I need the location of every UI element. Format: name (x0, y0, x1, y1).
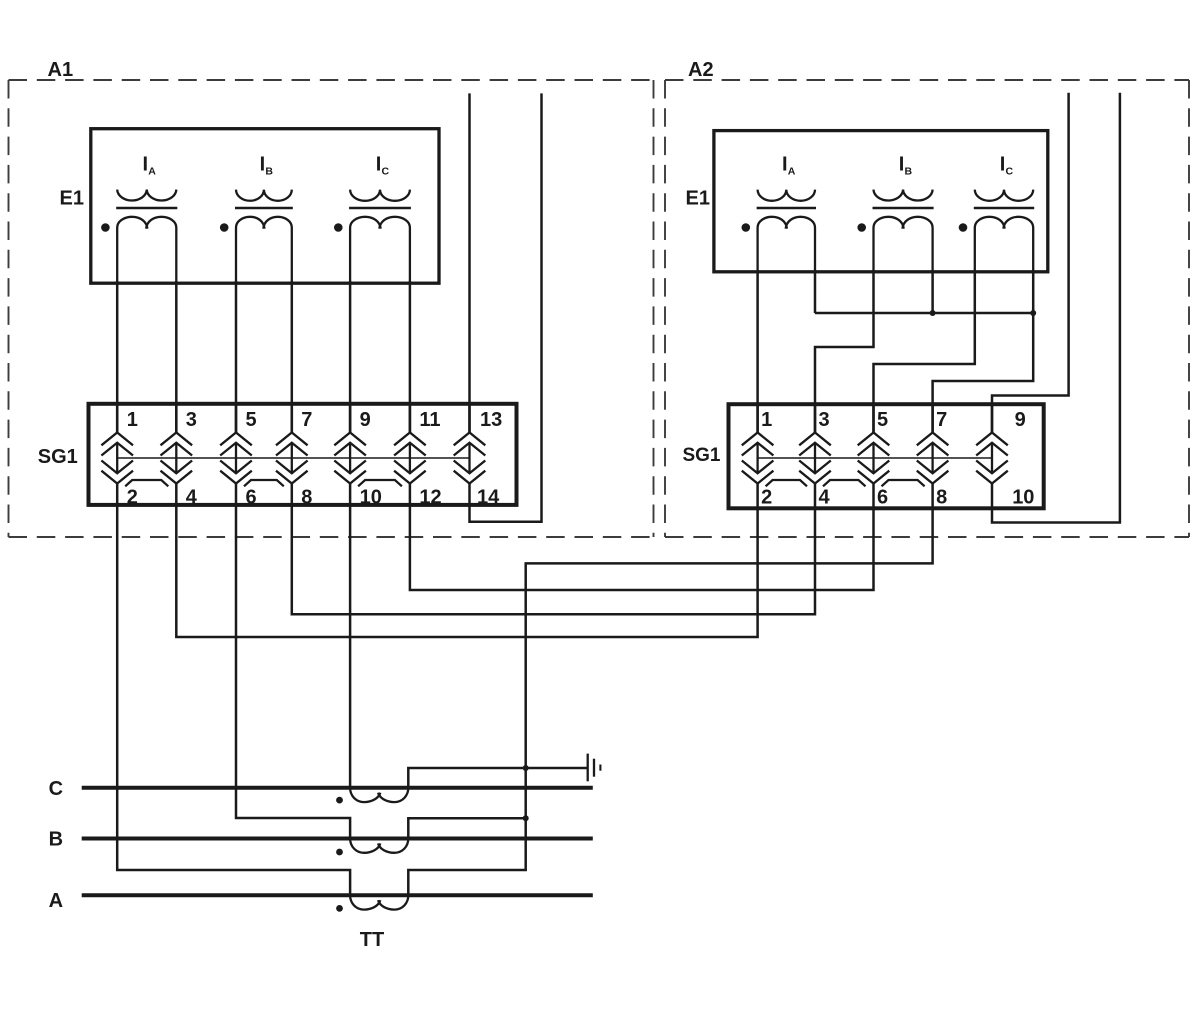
svg-text:2: 2 (127, 486, 138, 508)
svg-text:11: 11 (419, 409, 440, 431)
svg-text:9: 9 (1015, 409, 1026, 431)
svg-text:TT: TT (360, 929, 384, 951)
svg-text:5: 5 (877, 409, 888, 431)
svg-text:1: 1 (127, 409, 138, 431)
svg-text:SG1: SG1 (682, 445, 720, 466)
svg-text:C: C (382, 166, 390, 178)
svg-text:10: 10 (360, 486, 382, 508)
svg-text:I: I (1000, 154, 1006, 176)
svg-text:1: 1 (761, 409, 772, 431)
svg-text:C: C (1006, 166, 1014, 178)
svg-text:3: 3 (186, 409, 197, 431)
svg-text:6: 6 (246, 486, 257, 508)
svg-text:9: 9 (360, 409, 371, 431)
svg-text:5: 5 (246, 409, 257, 431)
svg-text:A: A (148, 166, 156, 178)
svg-text:I: I (260, 154, 266, 176)
svg-text:13: 13 (480, 409, 502, 431)
svg-text:6: 6 (877, 486, 888, 508)
svg-text:7: 7 (301, 409, 312, 431)
svg-text:A: A (49, 890, 63, 912)
svg-text:E1: E1 (60, 187, 84, 209)
svg-text:I: I (376, 154, 382, 176)
svg-text:E1: E1 (686, 187, 710, 209)
svg-text:A2: A2 (688, 59, 714, 81)
svg-text:I: I (142, 154, 148, 176)
svg-text:2: 2 (761, 486, 772, 508)
svg-text:B: B (265, 166, 273, 178)
svg-text:I: I (782, 154, 788, 176)
svg-text:SG1: SG1 (38, 446, 78, 468)
svg-text:B: B (905, 166, 913, 178)
svg-text:4: 4 (819, 486, 831, 508)
svg-text:7: 7 (936, 409, 947, 431)
svg-text:12: 12 (419, 486, 441, 508)
svg-text:8: 8 (301, 486, 312, 508)
svg-text:10: 10 (1012, 486, 1034, 508)
svg-text:B: B (49, 829, 63, 851)
svg-text:3: 3 (819, 409, 830, 431)
svg-text:C: C (49, 778, 63, 800)
svg-text:I: I (899, 154, 905, 176)
svg-text:8: 8 (936, 486, 947, 508)
svg-text:14: 14 (477, 486, 500, 508)
svg-text:A1: A1 (48, 59, 74, 81)
svg-text:4: 4 (186, 486, 198, 508)
svg-text:A: A (788, 166, 796, 178)
